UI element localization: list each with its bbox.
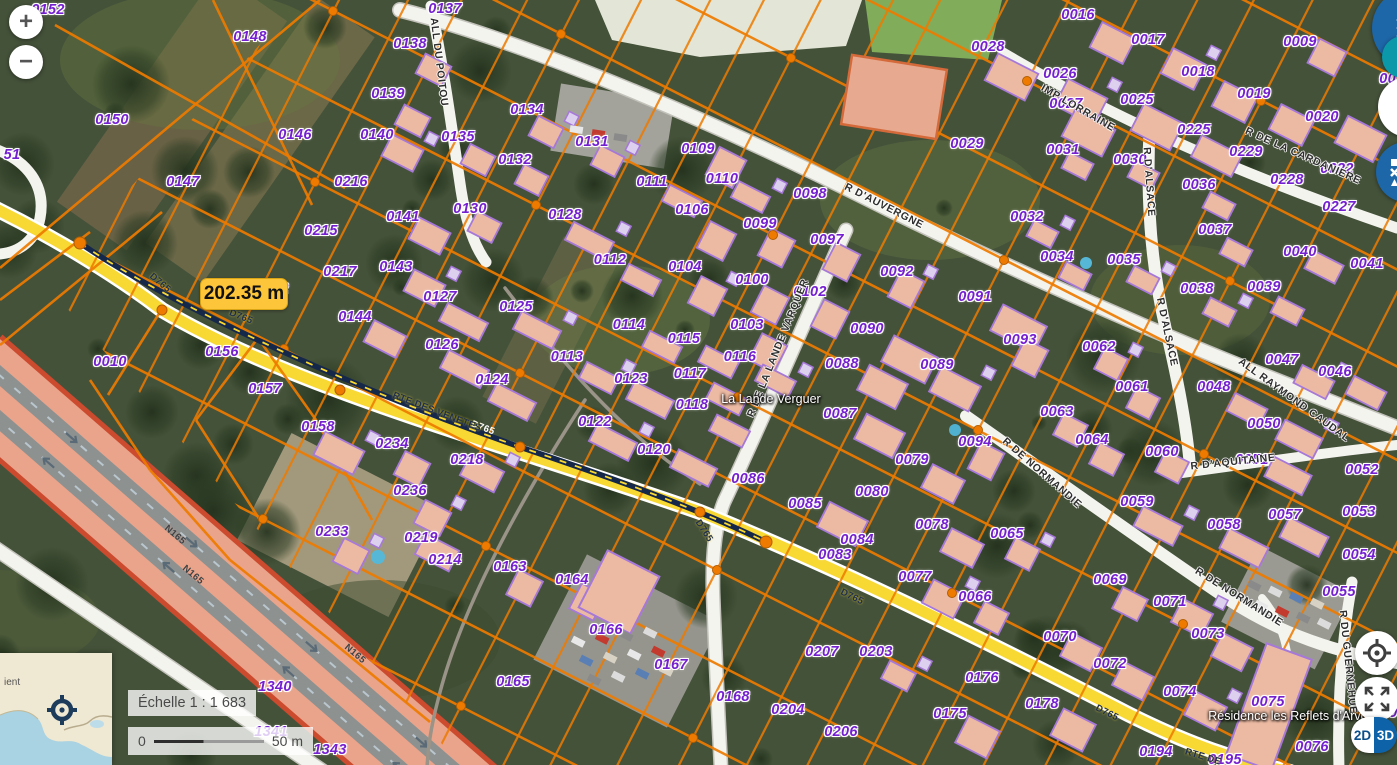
map-viewport[interactable]: 0152013701480138001600280017000900260139… — [0, 0, 1397, 765]
overview-minimap[interactable]: ient — [0, 653, 112, 765]
scalebar-end: 50 m — [272, 733, 303, 749]
measurement-label: 202.35 m — [200, 278, 288, 310]
aerial-map-canvas[interactable] — [0, 0, 1397, 765]
minimap-canvas — [0, 653, 112, 765]
scale-text: Échelle 1 : 1 683 — [128, 690, 256, 716]
fullscreen-button[interactable] — [1355, 677, 1397, 721]
zoom-in-button[interactable]: + — [9, 5, 43, 39]
minus-icon: − — [19, 50, 33, 74]
wrench-icon — [1391, 90, 1397, 124]
scalebar-start: 0 — [138, 733, 146, 749]
minimap-place-label: ient — [4, 677, 20, 688]
scalebar-line — [154, 740, 264, 743]
zoom-out-button[interactable]: − — [9, 45, 43, 79]
expand-icon — [1362, 684, 1392, 714]
legend-icon — [1386, 152, 1397, 192]
plus-icon: + — [19, 10, 33, 34]
dimension-toggle: 2D 3D — [1351, 717, 1397, 753]
scalebar: 0 50 m — [128, 727, 313, 755]
locate-button[interactable] — [1355, 631, 1397, 675]
crosshair-icon — [1361, 637, 1393, 669]
